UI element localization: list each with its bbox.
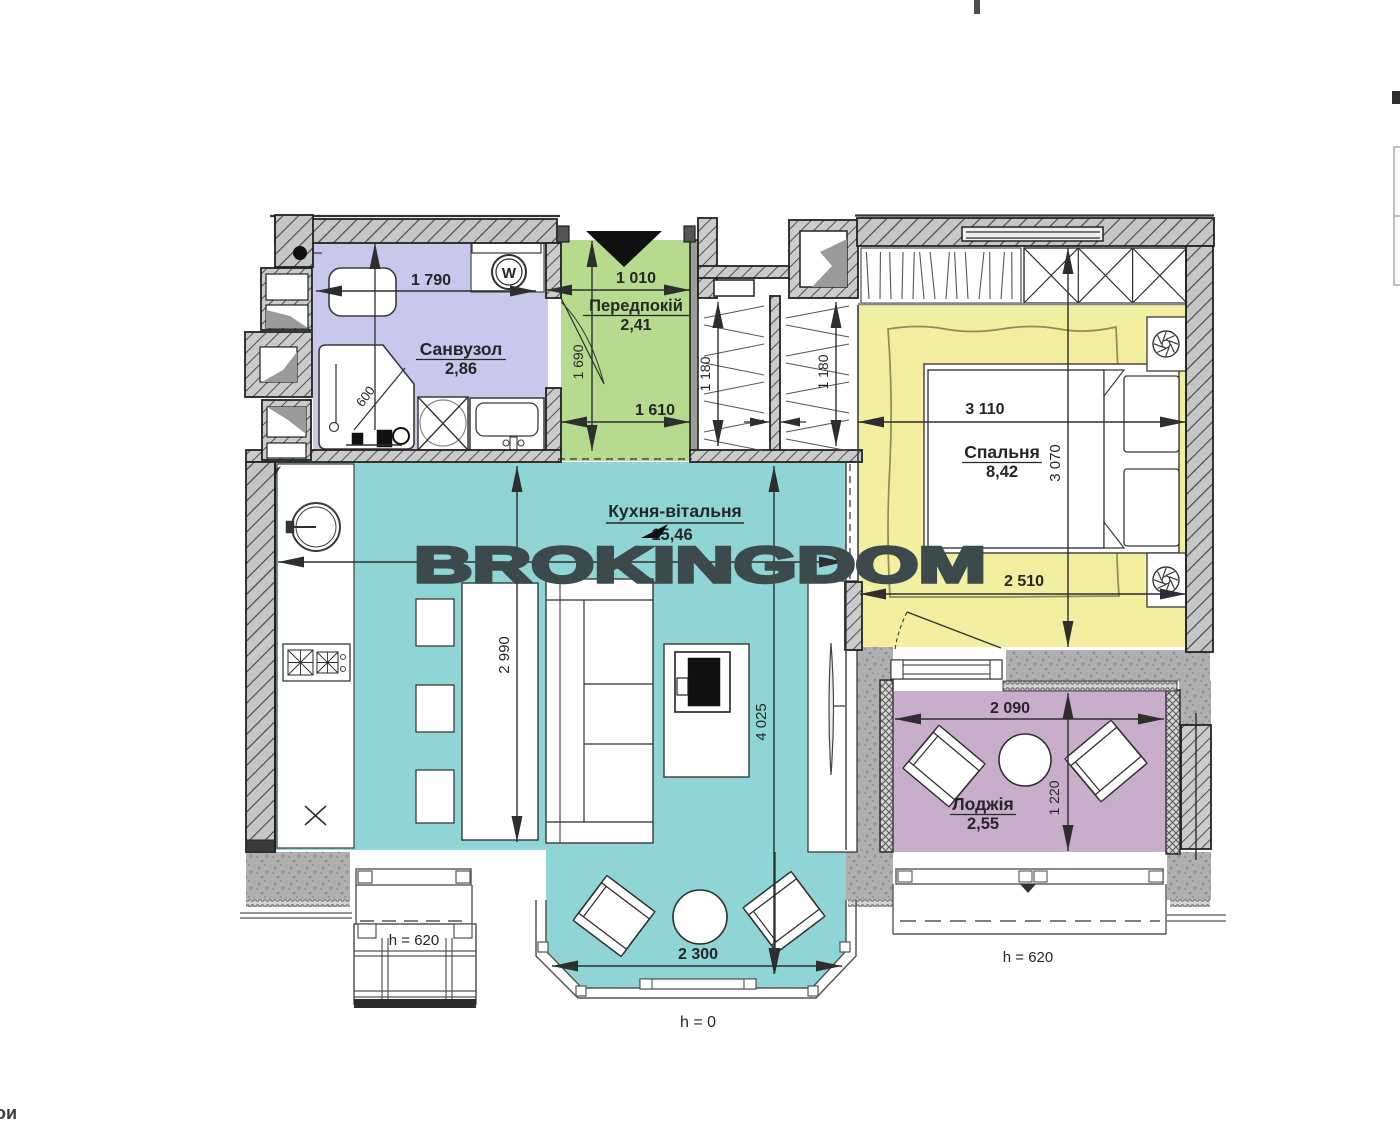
svg-text:2,86: 2,86 <box>445 360 477 378</box>
svg-text:Кухня-вітальня: Кухня-вітальня <box>608 501 742 521</box>
svg-text:ои: ои <box>0 1103 17 1123</box>
svg-text:BROKINGDOM: BROKINGDOM <box>414 537 986 593</box>
svg-text:Санвузол: Санвузол <box>420 339 503 359</box>
svg-text:2 990: 2 990 <box>496 636 513 674</box>
svg-text:1 220: 1 220 <box>1046 780 1062 815</box>
svg-text:1 790: 1 790 <box>411 272 451 289</box>
svg-text:1 010: 1 010 <box>616 270 656 287</box>
svg-text:3 070: 3 070 <box>1047 444 1064 482</box>
svg-text:Передпокій: Передпокій <box>589 297 683 315</box>
svg-text:h = 620: h = 620 <box>389 932 439 949</box>
svg-text:4 025: 4 025 <box>753 703 770 741</box>
svg-text:1 690: 1 690 <box>570 344 586 379</box>
svg-text:h = 620: h = 620 <box>1003 949 1053 966</box>
svg-text:8,42: 8,42 <box>986 463 1018 481</box>
svg-text:1 180: 1 180 <box>815 354 831 389</box>
svg-text:Лоджія: Лоджія <box>952 794 1013 814</box>
svg-text:1 610: 1 610 <box>635 402 675 419</box>
svg-text:3 110: 3 110 <box>965 401 1004 418</box>
svg-text:2 090: 2 090 <box>990 700 1030 717</box>
svg-text:h = 0: h = 0 <box>680 1014 716 1031</box>
svg-text:2,55: 2,55 <box>967 815 999 833</box>
svg-text:1 180: 1 180 <box>697 356 713 391</box>
svg-text:2 300: 2 300 <box>678 946 718 963</box>
svg-text:2 510: 2 510 <box>1004 573 1044 590</box>
svg-text:2,41: 2,41 <box>620 317 651 334</box>
svg-text:Спальня: Спальня <box>964 442 1040 462</box>
svg-text:W: W <box>502 265 517 282</box>
